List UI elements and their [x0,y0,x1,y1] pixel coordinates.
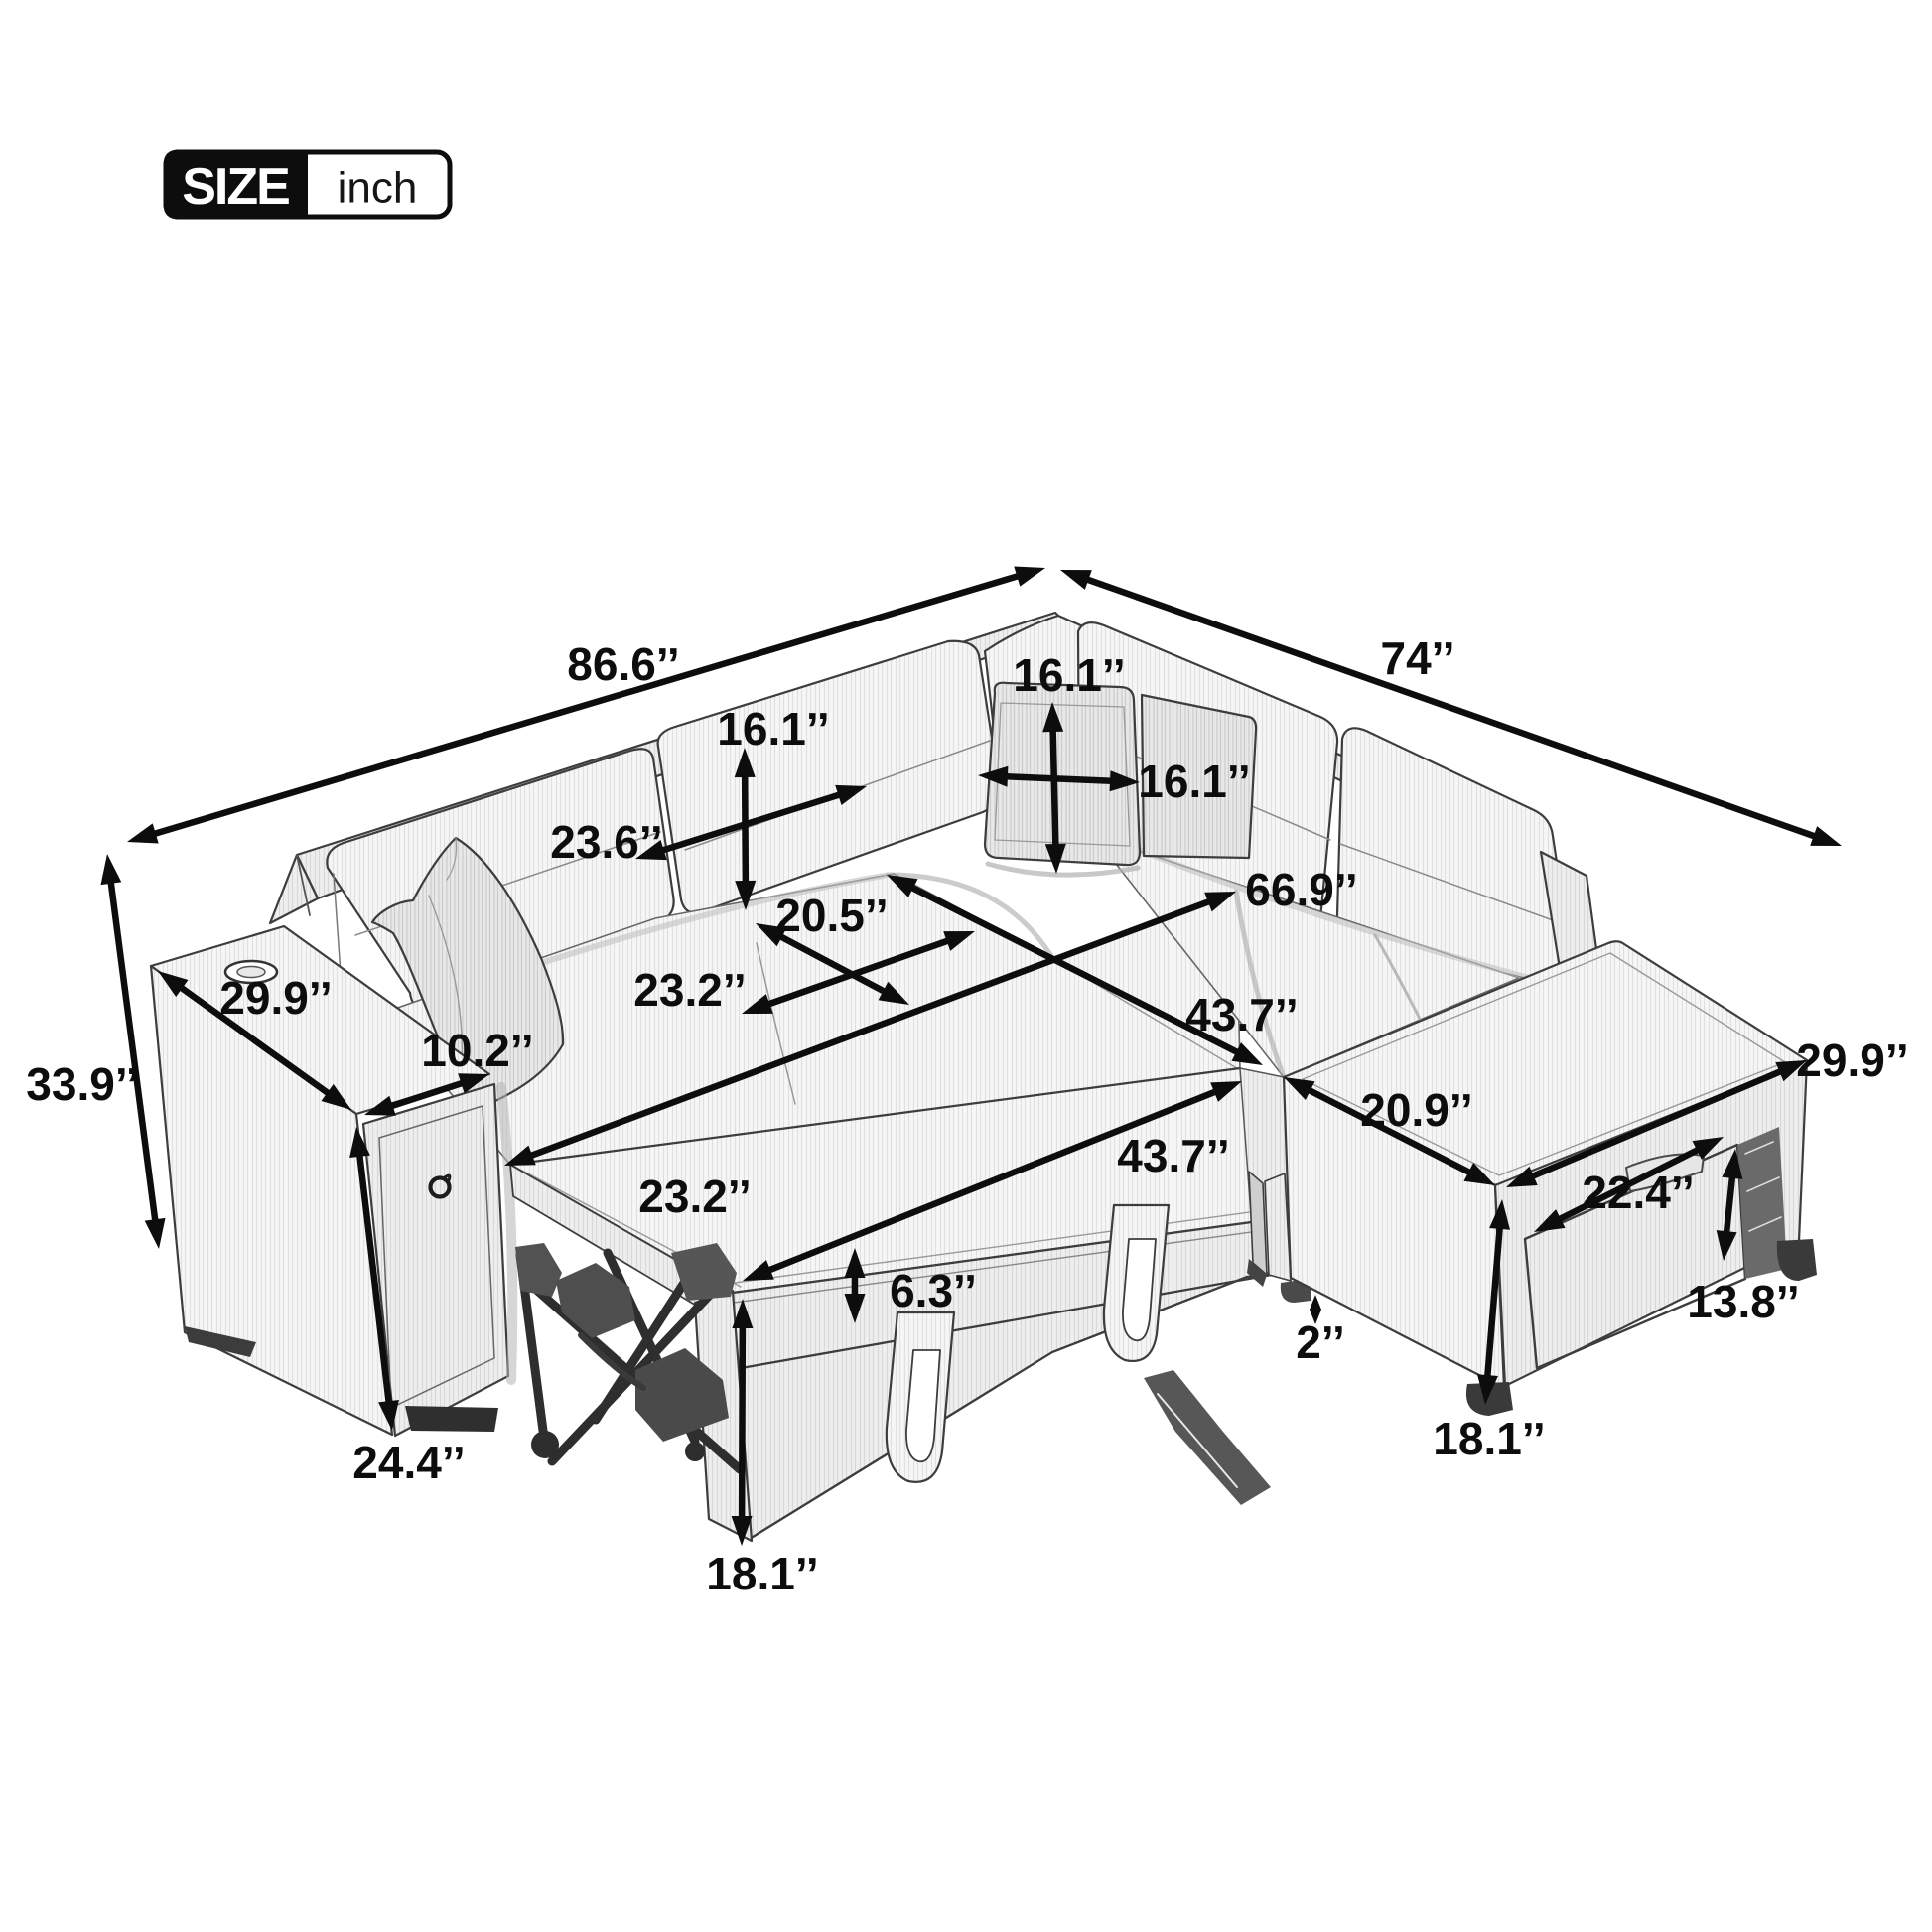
svg-text:29.9’’: 29.9’’ [1796,1035,1908,1086]
svg-text:43.7’’: 43.7’’ [1117,1130,1229,1181]
svg-text:20.5’’: 20.5’’ [775,890,888,941]
svg-text:74’’: 74’’ [1380,632,1454,684]
svg-text:18.1’’: 18.1’’ [706,1548,818,1599]
svg-text:16.1’’: 16.1’’ [717,703,829,755]
svg-text:13.8’’: 13.8’’ [1687,1276,1799,1327]
svg-text:23.2’’: 23.2’’ [633,964,746,1016]
svg-text:6.3’’: 6.3’’ [890,1265,977,1316]
svg-text:43.7’’: 43.7’’ [1185,989,1298,1040]
svg-text:16.1’’: 16.1’’ [1138,756,1250,807]
svg-text:20.9’’: 20.9’’ [1360,1084,1472,1136]
svg-text:2’’: 2’’ [1296,1316,1344,1368]
svg-text:33.9’’: 33.9’’ [26,1058,138,1110]
svg-text:23.2’’: 23.2’’ [638,1171,751,1222]
svg-text:66.9’’: 66.9’’ [1245,864,1357,915]
svg-text:29.9’’: 29.9’’ [219,972,332,1024]
svg-text:SIZE: SIZE [182,158,289,215]
svg-text:23.6’’: 23.6’’ [550,816,662,868]
svg-text:10.2’’: 10.2’’ [421,1025,533,1076]
svg-text:22.4’’: 22.4’’ [1582,1167,1694,1218]
svg-text:16.1’’: 16.1’’ [1013,649,1125,701]
svg-text:inch: inch [338,164,418,212]
svg-text:86.6’’: 86.6’’ [567,638,679,690]
svg-text:24.4’’: 24.4’’ [352,1437,465,1488]
svg-text:18.1’’: 18.1’’ [1433,1413,1545,1464]
